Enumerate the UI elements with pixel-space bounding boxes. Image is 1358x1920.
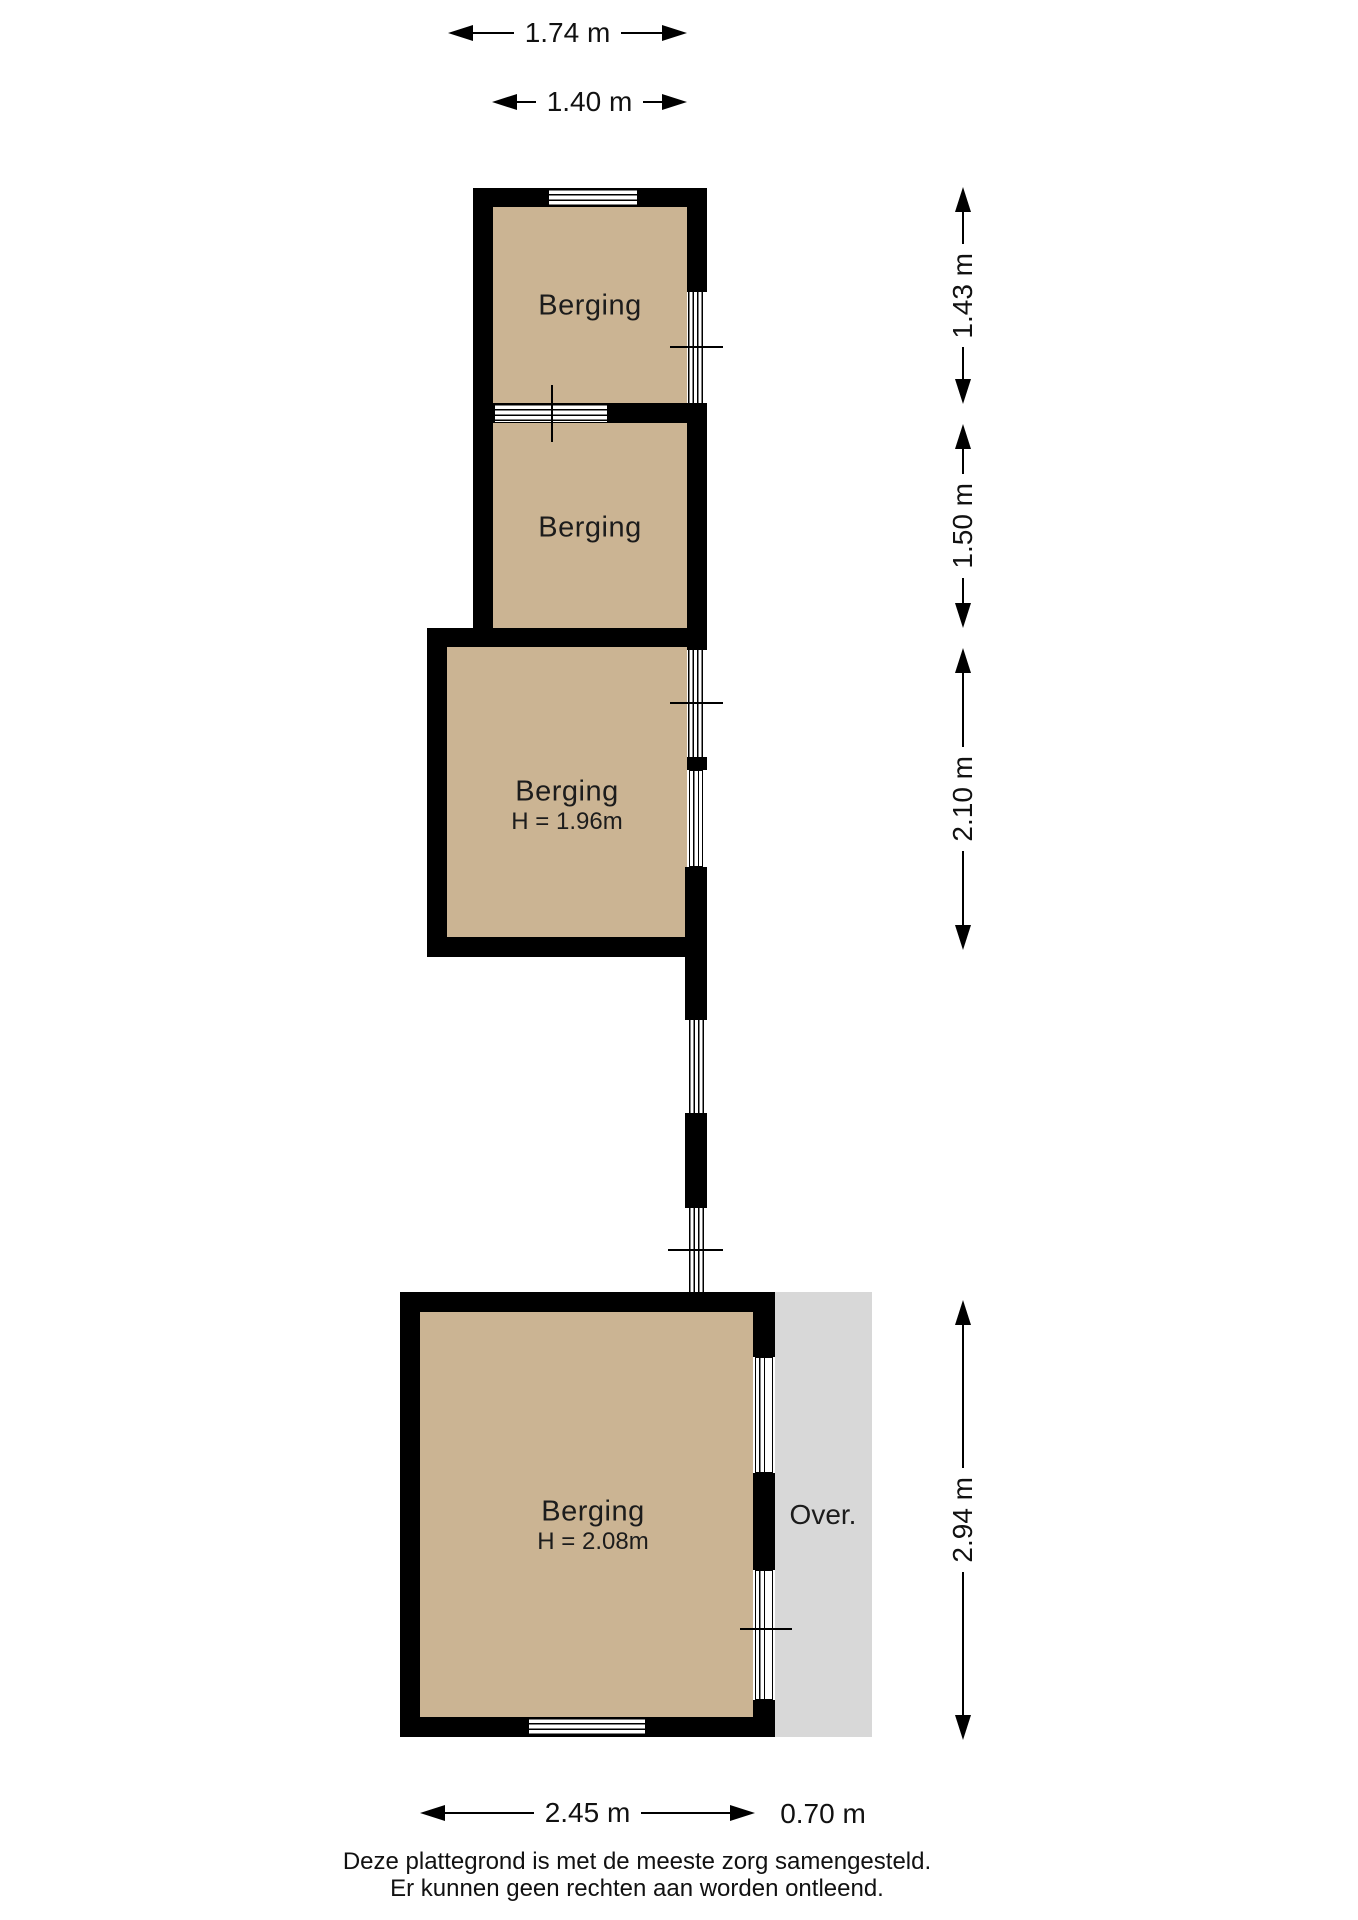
dimension-label: 1.43 m [947, 244, 979, 348]
dimension-line [962, 851, 964, 925]
arrowhead-down-icon [955, 925, 971, 950]
connector-wall-2 [685, 1113, 707, 1208]
wall-east-room4-mid [753, 1473, 775, 1570]
arrowhead-down-icon [955, 379, 971, 404]
arrowhead-up-icon [955, 424, 971, 449]
connector-window-1-icon [689, 1020, 704, 1113]
wall-east-room4-bottom [753, 1700, 775, 1737]
window-tick-separator [551, 385, 553, 442]
dimension-label: 2.94 m [947, 1468, 979, 1572]
dimension-bottom-overhang: 0.70 m [780, 1798, 866, 1830]
dimension-right-room1: 1.43 m [950, 187, 976, 404]
dimension-line [643, 101, 662, 103]
wall-east-room1 [687, 188, 707, 292]
window-tick-connector [668, 1249, 723, 1251]
dimension-right-room4: 2.94 m [950, 1300, 976, 1740]
wall-north-room4 [400, 1292, 775, 1312]
arrowhead-left-icon [420, 1805, 445, 1821]
window-south-room4-icon [529, 1718, 645, 1735]
dimension-line [473, 32, 514, 34]
dimension-line [621, 32, 662, 34]
room1-label: Berging [538, 290, 641, 323]
window-east-room4-upper-icon [755, 1357, 773, 1473]
wall-east-room4-top [753, 1312, 775, 1357]
room3-height-label: H = 1.96m [511, 808, 622, 836]
wall-west-room4 [400, 1312, 420, 1737]
dimension-line [962, 1325, 964, 1468]
wall-south-room3 [427, 937, 687, 957]
disclaimer-line-2: Er kunnen geen rechten aan worden ontlee… [0, 1875, 1274, 1902]
arrowhead-right-icon [662, 94, 687, 110]
arrowhead-down-icon [955, 603, 971, 628]
dimension-line [962, 1572, 964, 1715]
dimension-label: 1.50 m [947, 474, 979, 578]
room3-label: Berging [515, 776, 618, 809]
disclaimer: Deze plattegrond is met de meeste zorg s… [0, 1848, 1274, 1902]
room4-label: Berging [541, 1496, 644, 1529]
arrowhead-left-icon [448, 25, 473, 41]
arrowhead-down-icon [955, 1715, 971, 1740]
arrowhead-up-icon [955, 648, 971, 673]
dimension-bottom-room4: 2.45 m [420, 1802, 755, 1824]
wall-west-room3 [427, 647, 447, 957]
dimension-label: 2.45 m [534, 1797, 642, 1829]
wall-east-room3-mid [687, 757, 707, 770]
dimension-line [641, 1812, 730, 1814]
dimension-line [517, 101, 536, 103]
door-east-room3-icon [689, 770, 703, 867]
dimension-line [962, 347, 964, 379]
arrowhead-right-icon [730, 1805, 755, 1821]
dimension-line [445, 1812, 534, 1814]
arrowhead-up-icon [955, 1300, 971, 1325]
connector-wall-1 [685, 867, 707, 1020]
overhang-label: Over. [790, 1499, 857, 1531]
dimension-line [962, 212, 964, 244]
arrowhead-up-icon [955, 187, 971, 212]
wall-east-room2 [687, 403, 707, 650]
window-tick-room3 [670, 702, 723, 704]
dimension-right-room2: 1.50 m [950, 424, 976, 628]
dimension-line [962, 449, 964, 474]
window-tick-room1 [670, 346, 723, 348]
arrowhead-left-icon [492, 94, 517, 110]
window-north-icon [549, 189, 637, 206]
dimension-top-outer: 1.74 m [448, 22, 687, 44]
wall-between-room2-room3 [427, 628, 707, 647]
dimension-line [962, 673, 964, 747]
window-east-room4-lower-icon [755, 1570, 773, 1700]
room2-label: Berging [538, 512, 641, 545]
arrowhead-right-icon [662, 25, 687, 41]
disclaimer-line-1: Deze plattegrond is met de meeste zorg s… [0, 1848, 1274, 1875]
dimension-right-room3: 2.10 m [950, 648, 976, 950]
dimension-top-inner: 1.40 m [492, 91, 687, 113]
dimension-label: 2.10 m [947, 747, 979, 851]
dimension-label: 1.40 m [536, 86, 644, 118]
room4-height-label: H = 2.08m [537, 1528, 648, 1556]
dimension-line [962, 578, 964, 603]
floor-plan: Berging Berging Berging H = 1.96m Bergin… [0, 0, 1358, 1920]
dimension-label: 1.74 m [514, 17, 622, 49]
window-tick-room4 [740, 1628, 792, 1630]
